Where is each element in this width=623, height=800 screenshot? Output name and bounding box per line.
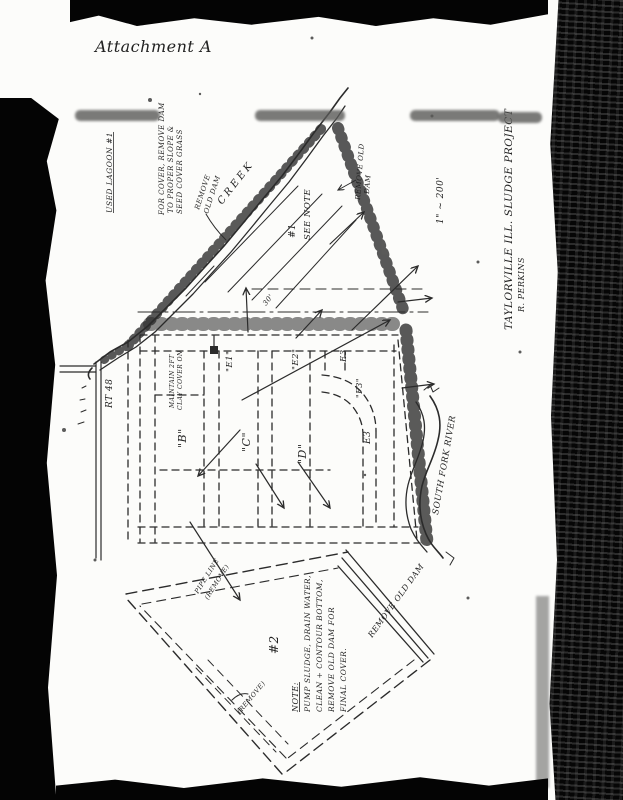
note-line3: REMOVE OLD DAM FOR: [327, 607, 336, 713]
corner-dike: [322, 375, 376, 527]
scan-smudge: [498, 112, 542, 123]
attachment-label: Attachment A: [93, 37, 212, 56]
pump-symbol: [210, 336, 218, 354]
road-line: [60, 362, 101, 560]
scale-note: 1" ~ 200': [436, 177, 446, 224]
illegible-marks: [78, 386, 86, 424]
scan-smudge: [255, 110, 345, 121]
cell-label-e2: "E2": [291, 349, 301, 370]
scan-border-right: [548, 0, 623, 800]
drawing-author: R. PERKINS: [517, 257, 526, 313]
note-heading: NOTE:: [291, 682, 300, 713]
lagoon1-note-line3: SEED COVER GRASS: [176, 129, 184, 214]
scan-streak: [536, 596, 549, 788]
creek-label: CREEK: [216, 159, 257, 207]
scan-smudge: [75, 110, 160, 121]
cell-label-e1: "E1": [225, 351, 235, 372]
flow-arrows: [190, 212, 434, 600]
lagoon2-marker: #2: [267, 635, 281, 654]
lagoon1-note-line1: FOR COVER, REMOVE DAM: [158, 102, 166, 216]
note-line2: CLEAN + CONTOUR BOTTOM,: [315, 579, 324, 712]
river-label: SOUTH FORK RIVER: [431, 415, 458, 516]
area1-marker: #1: [288, 224, 298, 238]
cell-label-e3-top: E3: [339, 349, 349, 363]
note-line4: FINAL COVER.: [339, 648, 348, 713]
note-line1: PUMP SLUDGE, DRAIN WATER,: [303, 575, 312, 713]
lagoon1-note-line2: TO PROPER SLOPE &: [167, 125, 175, 213]
road-label: RT 48: [105, 379, 115, 409]
lagoon1-heading: USED LAGOON #1: [105, 132, 114, 213]
lagoon2-outline: [126, 552, 430, 774]
remove-old-dam-right-line2: DAM: [363, 174, 372, 195]
remove-small-label: (REMOVE): [235, 679, 267, 715]
cell-label-d: "D": [296, 444, 309, 464]
scanned-page: Attachment A TAYLORVILLE ILL. SLUDGE PRO…: [0, 0, 623, 800]
maintain-note-line1: MAINTAIN 2FT: [169, 354, 176, 409]
drawing-title: TAYLORVILLE ILL. SLUDGE PROJECT: [503, 108, 515, 330]
cell-label-b: "B": [176, 428, 189, 448]
dim-label: 30': [261, 293, 275, 308]
cell-label-c: "C": [240, 432, 253, 452]
cell-label-e3-low: E3: [363, 431, 373, 445]
see-note-label: SEE NOTE: [303, 188, 313, 240]
maintain-note-line2: CLAY COVER ON: [177, 350, 184, 410]
remove-old-dam-diagonal: REMOVE OLD DAM: [366, 562, 426, 640]
scan-smudge: [410, 110, 500, 121]
cell-label-f3: "F3": [355, 378, 364, 398]
